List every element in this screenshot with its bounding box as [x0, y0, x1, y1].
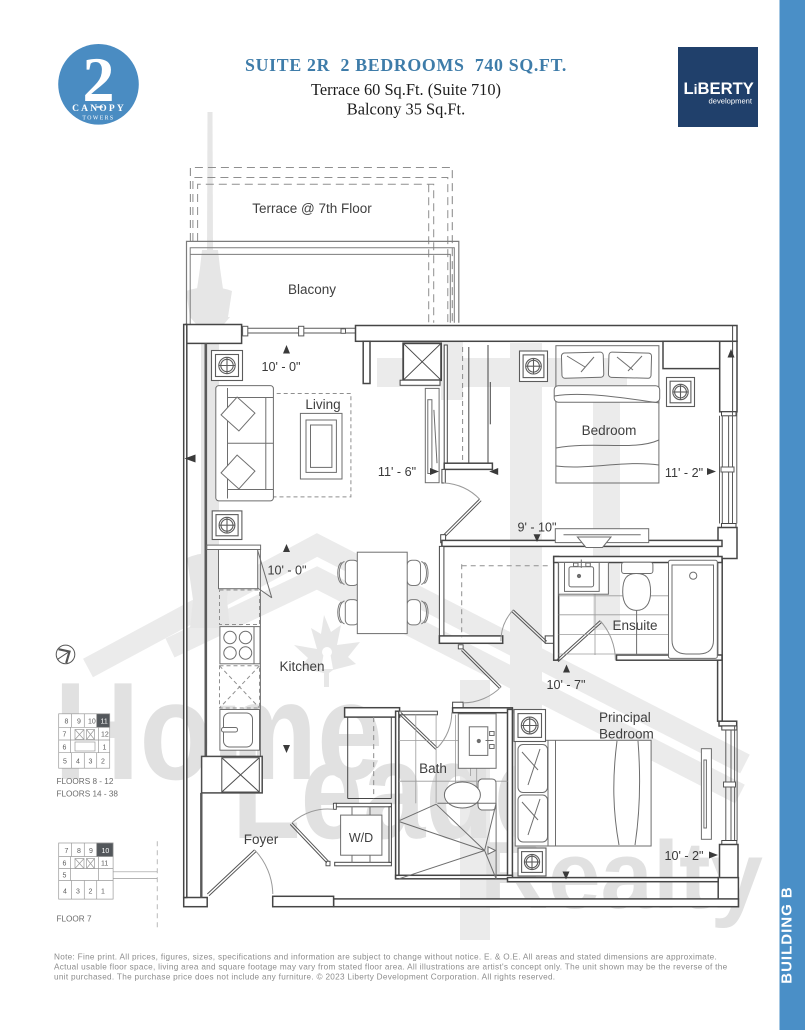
- svg-text:10: 10: [88, 719, 96, 726]
- svg-text:2: 2: [101, 759, 105, 766]
- svg-text:6: 6: [63, 745, 67, 752]
- svg-text:W/D: W/D: [349, 831, 373, 845]
- svg-text:10' - 7": 10' - 7": [546, 678, 585, 692]
- svg-text:1: 1: [101, 889, 105, 896]
- svg-text:11: 11: [101, 719, 108, 726]
- svg-text:Blacony: Blacony: [288, 282, 336, 297]
- svg-text:8: 8: [65, 719, 69, 726]
- svg-text:Principal: Principal: [599, 710, 651, 725]
- svg-text:LiBERTY: LiBERTY: [684, 79, 754, 98]
- svg-text:3: 3: [89, 759, 93, 766]
- svg-text:Actual usable floor space, liv: Actual usable floor space, living area a…: [54, 963, 728, 972]
- svg-text:4: 4: [76, 759, 80, 766]
- svg-text:CANOPY: CANOPY: [72, 104, 126, 114]
- svg-text:10' - 0": 10' - 0": [267, 564, 306, 578]
- svg-text:Ensuite: Ensuite: [612, 618, 657, 633]
- svg-text:BUILDING B: BUILDING B: [779, 886, 796, 984]
- svg-text:FLOORS 8 - 12: FLOORS 8 - 12: [57, 777, 114, 786]
- svg-text:3: 3: [76, 889, 80, 896]
- svg-text:Foyer: Foyer: [244, 832, 279, 847]
- svg-text:6: 6: [63, 861, 67, 868]
- svg-text:FLOORS 14 - 38: FLOORS 14 - 38: [57, 790, 119, 799]
- svg-text:Bath: Bath: [419, 761, 447, 776]
- svg-text:Note: Fine print. All prices,: Note: Fine print. All prices, figures, s…: [54, 953, 717, 962]
- svg-text:1: 1: [103, 745, 107, 752]
- svg-text:SUITE 2R 2 BEDROOMS 740 SQ.F: SUITE 2R 2 BEDROOMS 740 SQ.FT.: [245, 55, 567, 75]
- svg-text:FLOOR 7: FLOOR 7: [57, 915, 92, 924]
- svg-text:11' - 6": 11' - 6": [378, 465, 416, 479]
- svg-text:Living: Living: [305, 397, 340, 412]
- svg-text:7: 7: [63, 732, 67, 739]
- svg-text:10: 10: [102, 848, 110, 855]
- svg-text:10' - 0": 10' - 0": [261, 360, 300, 374]
- svg-text:9: 9: [89, 848, 93, 855]
- svg-text:Balcony 35 Sq.Ft.: Balcony 35 Sq.Ft.: [347, 100, 465, 119]
- svg-text:11: 11: [101, 861, 108, 868]
- svg-text:unit purchased. The purchase p: unit purchased. The purchase price does …: [54, 973, 555, 982]
- svg-text:11' - 2": 11' - 2": [665, 466, 703, 480]
- svg-text:7: 7: [65, 848, 69, 855]
- svg-text:9' - 10": 9' - 10": [517, 521, 556, 535]
- svg-text:Terrace @ 7th Floor: Terrace @ 7th Floor: [252, 201, 372, 216]
- svg-text:TOWERS: TOWERS: [82, 116, 114, 122]
- svg-text:Kitchen: Kitchen: [279, 659, 324, 674]
- svg-text:5: 5: [63, 759, 67, 766]
- svg-text:5: 5: [63, 873, 67, 880]
- svg-text:Bedroom: Bedroom: [582, 423, 637, 438]
- svg-text:12: 12: [101, 732, 109, 739]
- svg-text:4: 4: [63, 889, 67, 896]
- svg-text:Bedroom: Bedroom: [599, 727, 654, 742]
- svg-text:Terrace 60 Sq.Ft. (Suite 710): Terrace 60 Sq.Ft. (Suite 710): [311, 80, 501, 99]
- svg-text:development: development: [709, 97, 753, 106]
- svg-text:2: 2: [89, 889, 93, 896]
- svg-text:8: 8: [77, 848, 81, 855]
- svg-text:9: 9: [77, 719, 81, 726]
- svg-text:10' - 2": 10' - 2": [664, 849, 703, 863]
